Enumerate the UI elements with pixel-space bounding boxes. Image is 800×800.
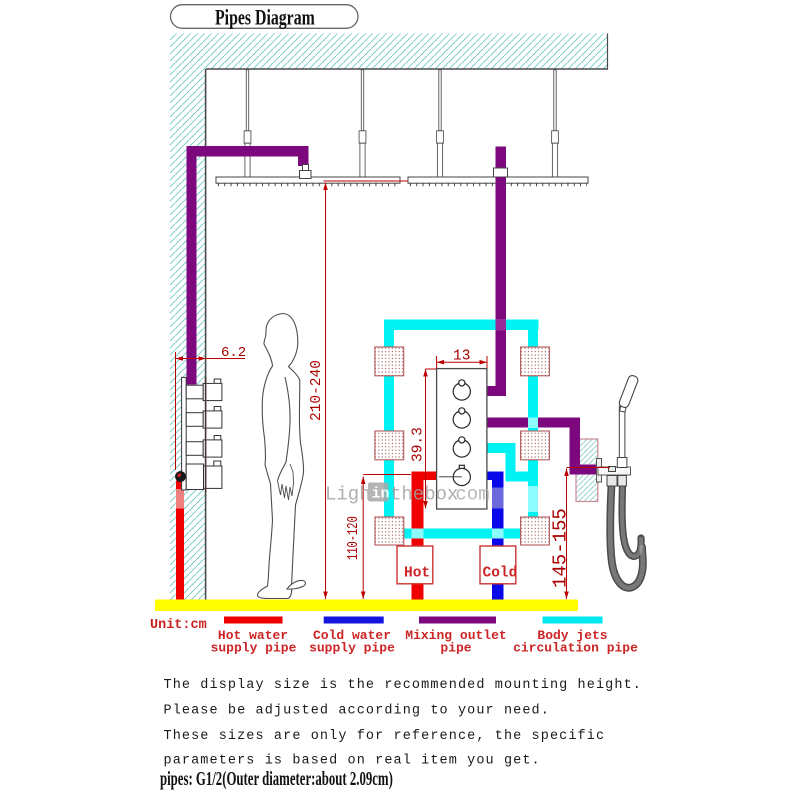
svg-text:Please be adjusted according t: Please be adjusted according to your nee… [164,704,550,719]
svg-text:6.2: 6.2 [221,345,246,361]
svg-text:in: in [372,486,390,503]
svg-text:pipes: G1/2(Outer diameter:abo: pipes: G1/2(Outer diameter:about 2.09cm) [160,767,393,790]
svg-text:Pipes Diagram: Pipes Diagram [215,6,315,30]
svg-text:supply pipe: supply pipe [309,641,395,656]
svg-text:210-240: 210-240 [309,360,325,421]
svg-text:circulation pipe: circulation pipe [513,641,638,656]
svg-text:13: 13 [453,349,470,365]
svg-text:110-120: 110-120 [344,516,361,560]
svg-text:145-155: 145-155 [550,508,572,588]
svg-text:Cold: Cold [483,566,518,582]
svg-text:The display size is the recomm: The display size is the recommended moun… [164,678,642,693]
svg-text:supply pipe: supply pipe [211,641,297,656]
svg-text:.com: .com [444,484,490,506]
svg-text:39.3: 39.3 [411,427,427,462]
svg-text:These sizes are only for refer: These sizes are only for reference, the … [164,729,606,744]
svg-text:Hot: Hot [404,566,430,582]
svg-text:Unit:cm: Unit:cm [150,618,207,633]
svg-text:pipe: pipe [440,641,471,656]
